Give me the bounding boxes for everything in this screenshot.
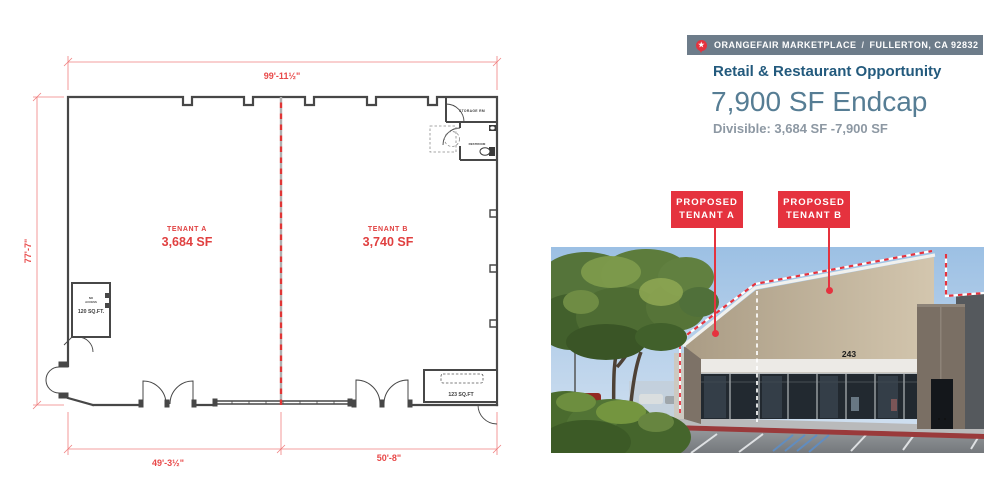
- entry-doors: [139, 380, 412, 407]
- leader-line-b: [828, 228, 830, 289]
- location-banner: ★ ORANGEFAIR MARKETPLACE / FULLERTON, CA…: [687, 35, 983, 55]
- toilet-icon: [480, 147, 495, 156]
- entry-pillar: [917, 304, 965, 429]
- proposed-tenant-b-callout: PROPOSED TENANT B: [778, 191, 850, 228]
- tenant-b-area: 3,740 SF: [363, 235, 414, 249]
- tenant-a-area: 3,684 SF: [162, 235, 213, 249]
- leader-line-a: [714, 228, 716, 332]
- dim-bottom-left-label: 49'-3½": [152, 458, 184, 468]
- address-number: 243: [842, 349, 856, 359]
- divisible-note: Divisible: 3,684 SF -7,900 SF: [713, 121, 888, 136]
- storage-restroom: [430, 97, 497, 160]
- storage-room-label: STORAGE RM: [459, 109, 485, 113]
- dim-left-label: 77'-7": [23, 239, 33, 263]
- headline: 7,900 SF Endcap: [711, 86, 927, 118]
- fascia-band: [701, 359, 934, 373]
- no-access-line2: ACCESS: [85, 300, 97, 304]
- floor-plan: 99'-11½" 77'-7" 49'-3½" 50'-8" TENANT A …: [0, 0, 520, 492]
- property-address: FULLERTON, CA 92832: [870, 40, 979, 50]
- callout-a-line1: PROPOSED: [676, 197, 738, 209]
- callout-b-line2: TENANT B: [786, 210, 842, 222]
- storefront-glazing: [213, 399, 352, 406]
- property-name: ORANGEFAIR MARKETPLACE: [714, 40, 857, 50]
- room-120-label: 120 SQ.FT.: [78, 309, 105, 315]
- dim-top-label: 99'-11½": [264, 71, 300, 81]
- tenant-b-label: TENANT B: [368, 226, 408, 233]
- site-photo: 243: [551, 247, 984, 453]
- room-123-label: 123 SQ.FT: [448, 392, 474, 398]
- left-return-wall: [684, 346, 701, 424]
- map-pin-icon: ★: [696, 40, 707, 51]
- dim-bottom-right-label: 50'-8": [377, 453, 401, 463]
- tenant-a-label: TENANT A: [167, 226, 207, 233]
- room-120: [64, 283, 110, 352]
- banner-divider: /: [862, 40, 865, 50]
- leader-dot-b: [826, 287, 833, 294]
- opportunity-subtitle: Retail & Restaurant Opportunity: [713, 63, 941, 80]
- flyer-canvas: 99'-11½" 77'-7" 49'-3½" 50'-8" TENANT A …: [0, 0, 984, 492]
- restroom-label: RESTROOM: [469, 142, 486, 146]
- callout-a-line2: TENANT A: [679, 210, 735, 222]
- star-icon: ★: [698, 42, 705, 49]
- left-exit-door: [46, 362, 68, 398]
- plan-walls: [68, 97, 497, 405]
- leader-dot-a: [712, 330, 719, 337]
- sink-icon: [489, 125, 496, 131]
- proposed-tenant-a-callout: PROPOSED TENANT A: [671, 191, 743, 228]
- callout-b-line1: PROPOSED: [783, 197, 845, 209]
- outer-wall: [68, 97, 497, 405]
